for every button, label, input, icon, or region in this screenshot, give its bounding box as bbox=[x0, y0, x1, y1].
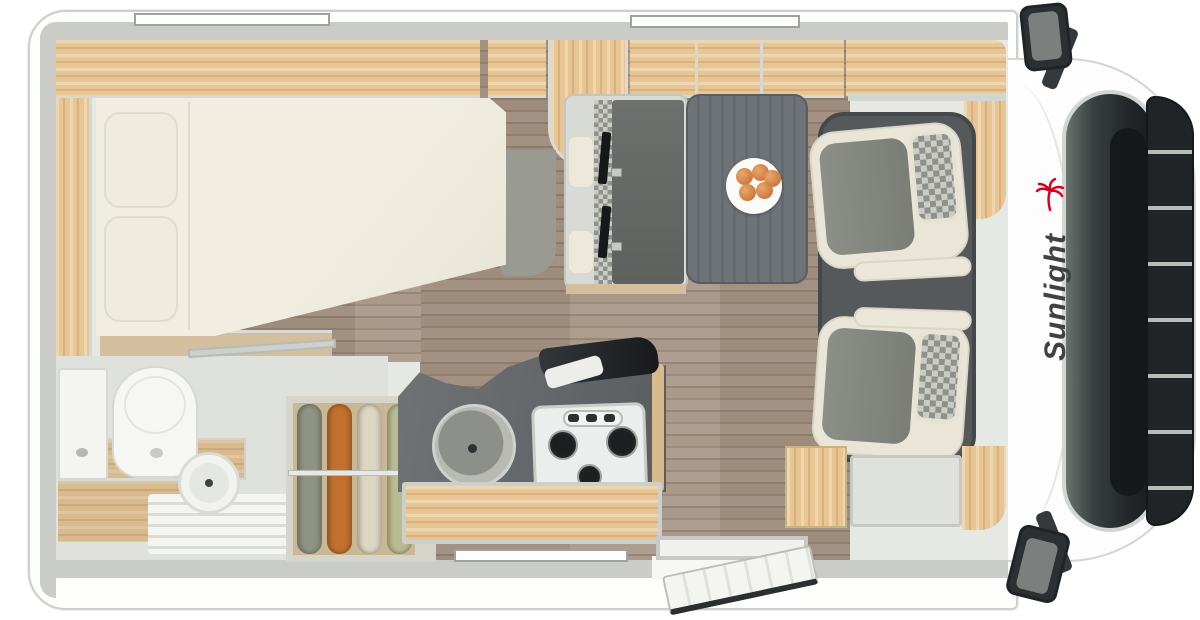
side-mirror-glass bbox=[1028, 11, 1063, 62]
bench-seat-surface bbox=[612, 100, 684, 284]
mattress-seam bbox=[188, 102, 190, 330]
fruit bbox=[736, 168, 753, 185]
overhead-cabinet-dinette bbox=[630, 40, 844, 98]
toilet-lid bbox=[124, 376, 186, 434]
hanging-garment bbox=[297, 404, 322, 554]
pillow bbox=[104, 216, 178, 322]
kitchen-drawer-front bbox=[402, 482, 662, 544]
washbasin-drain-icon bbox=[205, 479, 213, 487]
overhead-cabinet-bed bbox=[56, 40, 480, 98]
fruit bbox=[739, 184, 756, 201]
cabinet-divider bbox=[760, 42, 763, 96]
hob-knob bbox=[586, 414, 597, 422]
toilet-flush-icon bbox=[150, 448, 163, 458]
belt-buckle bbox=[611, 242, 622, 251]
belt-buckle bbox=[611, 168, 622, 177]
brand-text: Sunlight bbox=[1039, 207, 1073, 387]
bench-cushion bbox=[568, 230, 594, 274]
overhead-cabinet-mid bbox=[488, 40, 546, 98]
wall-rear bbox=[40, 22, 56, 598]
rear-wardrobe bbox=[56, 98, 92, 360]
bench-wood-base bbox=[566, 284, 686, 294]
vanity-drain-icon bbox=[76, 448, 88, 457]
curved-cabinet-side bbox=[500, 150, 556, 276]
motorhome-floorplan: Sunlight bbox=[0, 0, 1200, 620]
cabinet-divider bbox=[695, 42, 698, 96]
hob-burner bbox=[606, 426, 638, 458]
cab-seat-driver bbox=[807, 119, 988, 293]
door-side-cabinet bbox=[785, 446, 847, 528]
seat-armrest bbox=[853, 307, 972, 331]
cab-step-wood bbox=[962, 446, 1006, 530]
bench-cushion bbox=[568, 136, 594, 188]
fruit bbox=[764, 170, 781, 187]
seat-pad bbox=[821, 327, 917, 445]
window-top-left bbox=[134, 13, 330, 26]
counter-wood-edge bbox=[652, 364, 664, 492]
seat-pad bbox=[818, 137, 915, 256]
seat-headrest bbox=[913, 329, 965, 424]
hanging-garment bbox=[327, 404, 352, 554]
wall-bottom bbox=[40, 560, 1008, 578]
dashboard bbox=[1110, 128, 1146, 496]
pillow bbox=[104, 112, 178, 208]
seat-headrest bbox=[908, 129, 962, 225]
overhead-cabinet-cab bbox=[846, 40, 1006, 96]
hob-knob bbox=[604, 414, 615, 422]
window-bottom bbox=[454, 549, 628, 562]
hob-burner bbox=[548, 430, 578, 460]
window-top-right bbox=[630, 15, 800, 28]
sink-drain-icon bbox=[468, 444, 477, 453]
brand-logo: Sunlight bbox=[1028, 178, 1084, 438]
hob-knob bbox=[568, 414, 579, 422]
hanging-garment bbox=[357, 404, 382, 554]
bathroom-vanity bbox=[58, 368, 108, 480]
cab-entry-step bbox=[850, 455, 962, 527]
front-grille bbox=[1146, 96, 1194, 526]
